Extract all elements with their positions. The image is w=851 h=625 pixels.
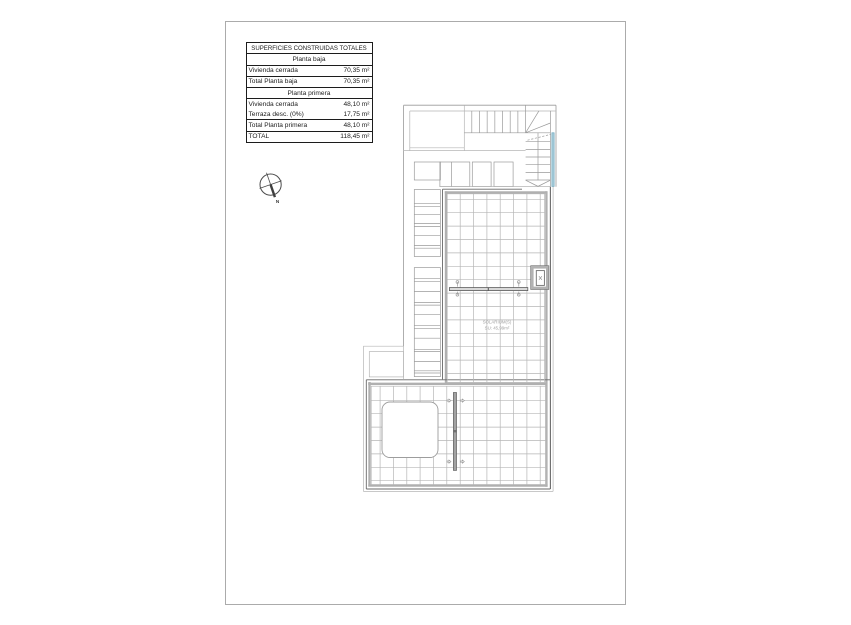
svg-text:SOLARIUM(S): SOLARIUM(S) — [483, 320, 512, 325]
svg-text:N: N — [276, 199, 280, 204]
svg-text:SU: 45,99m²: SU: 45,99m² — [485, 325, 510, 330]
